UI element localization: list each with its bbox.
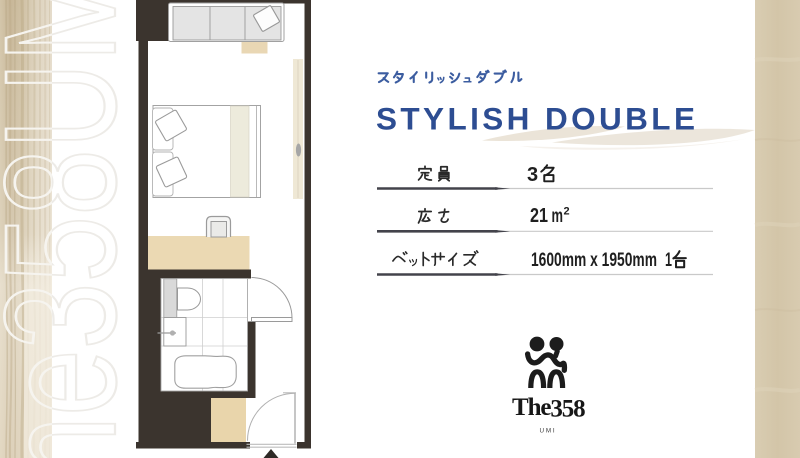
svg-text:m: m (552, 206, 564, 227)
svg-text:2: 2 (564, 206, 570, 218)
svg-text:3: 3 (527, 164, 538, 186)
svg-text:STYLISH DOUBLE: STYLISH DOUBLE (376, 101, 698, 137)
svg-text:UMI: UMI (540, 428, 557, 435)
svg-text:The358: The358 (512, 394, 585, 423)
svg-text:1600mm x 1950mm: 1600mm x 1950mm (531, 250, 657, 271)
svg-text:1: 1 (665, 250, 672, 271)
svg-text:21: 21 (530, 205, 548, 227)
